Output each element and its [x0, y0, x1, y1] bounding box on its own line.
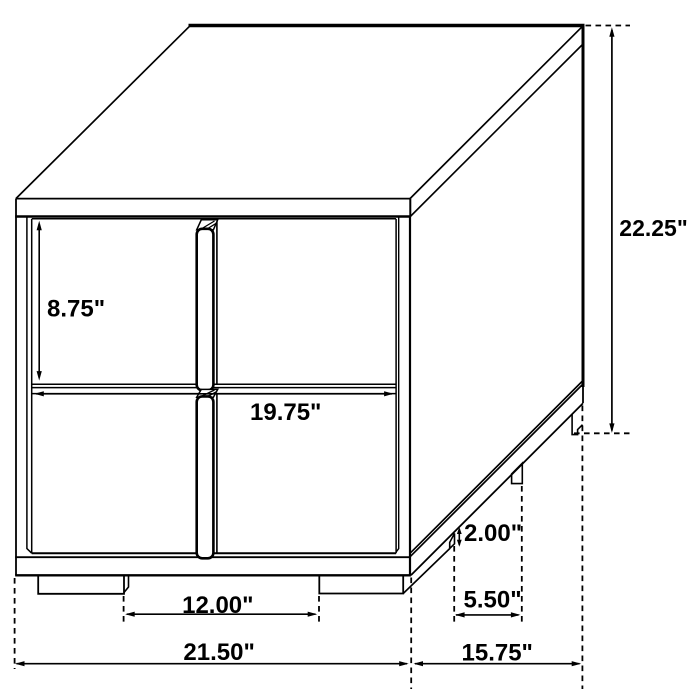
- svg-text:12.00": 12.00": [182, 592, 253, 619]
- svg-text:15.75": 15.75": [462, 640, 533, 667]
- svg-text:21.50": 21.50": [183, 639, 254, 666]
- svg-text:8.75": 8.75": [47, 296, 105, 323]
- svg-text:22.25": 22.25": [619, 215, 687, 241]
- svg-text:19.75": 19.75": [250, 399, 321, 426]
- svg-text:2.00": 2.00": [464, 520, 522, 547]
- svg-text:5.50": 5.50": [464, 587, 522, 614]
